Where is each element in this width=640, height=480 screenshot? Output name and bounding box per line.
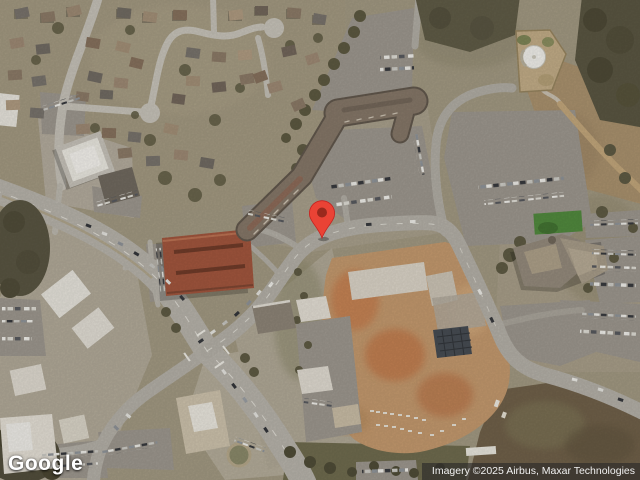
attribution-text: Imagery ©2025 Airbus, Maxar Technologies <box>432 465 635 477</box>
map-viewport[interactable]: Google Imagery ©2025 Airbus, Maxar Techn… <box>0 0 640 480</box>
satellite-map[interactable] <box>0 0 640 480</box>
google-logo[interactable]: Google <box>8 452 83 476</box>
attribution-bar: Imagery ©2025 Airbus, Maxar Technologies <box>422 463 640 480</box>
